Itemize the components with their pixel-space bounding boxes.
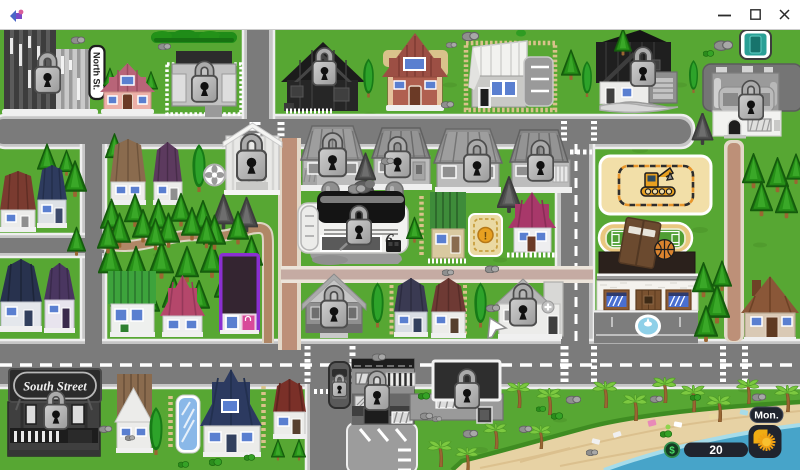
svg-text:Mon.: Mon. xyxy=(754,410,779,422)
svg-text:20: 20 xyxy=(709,443,723,457)
svg-text:North St.: North St. xyxy=(92,52,102,90)
svg-text:$: $ xyxy=(669,446,675,457)
svg-text:!: ! xyxy=(484,231,488,243)
